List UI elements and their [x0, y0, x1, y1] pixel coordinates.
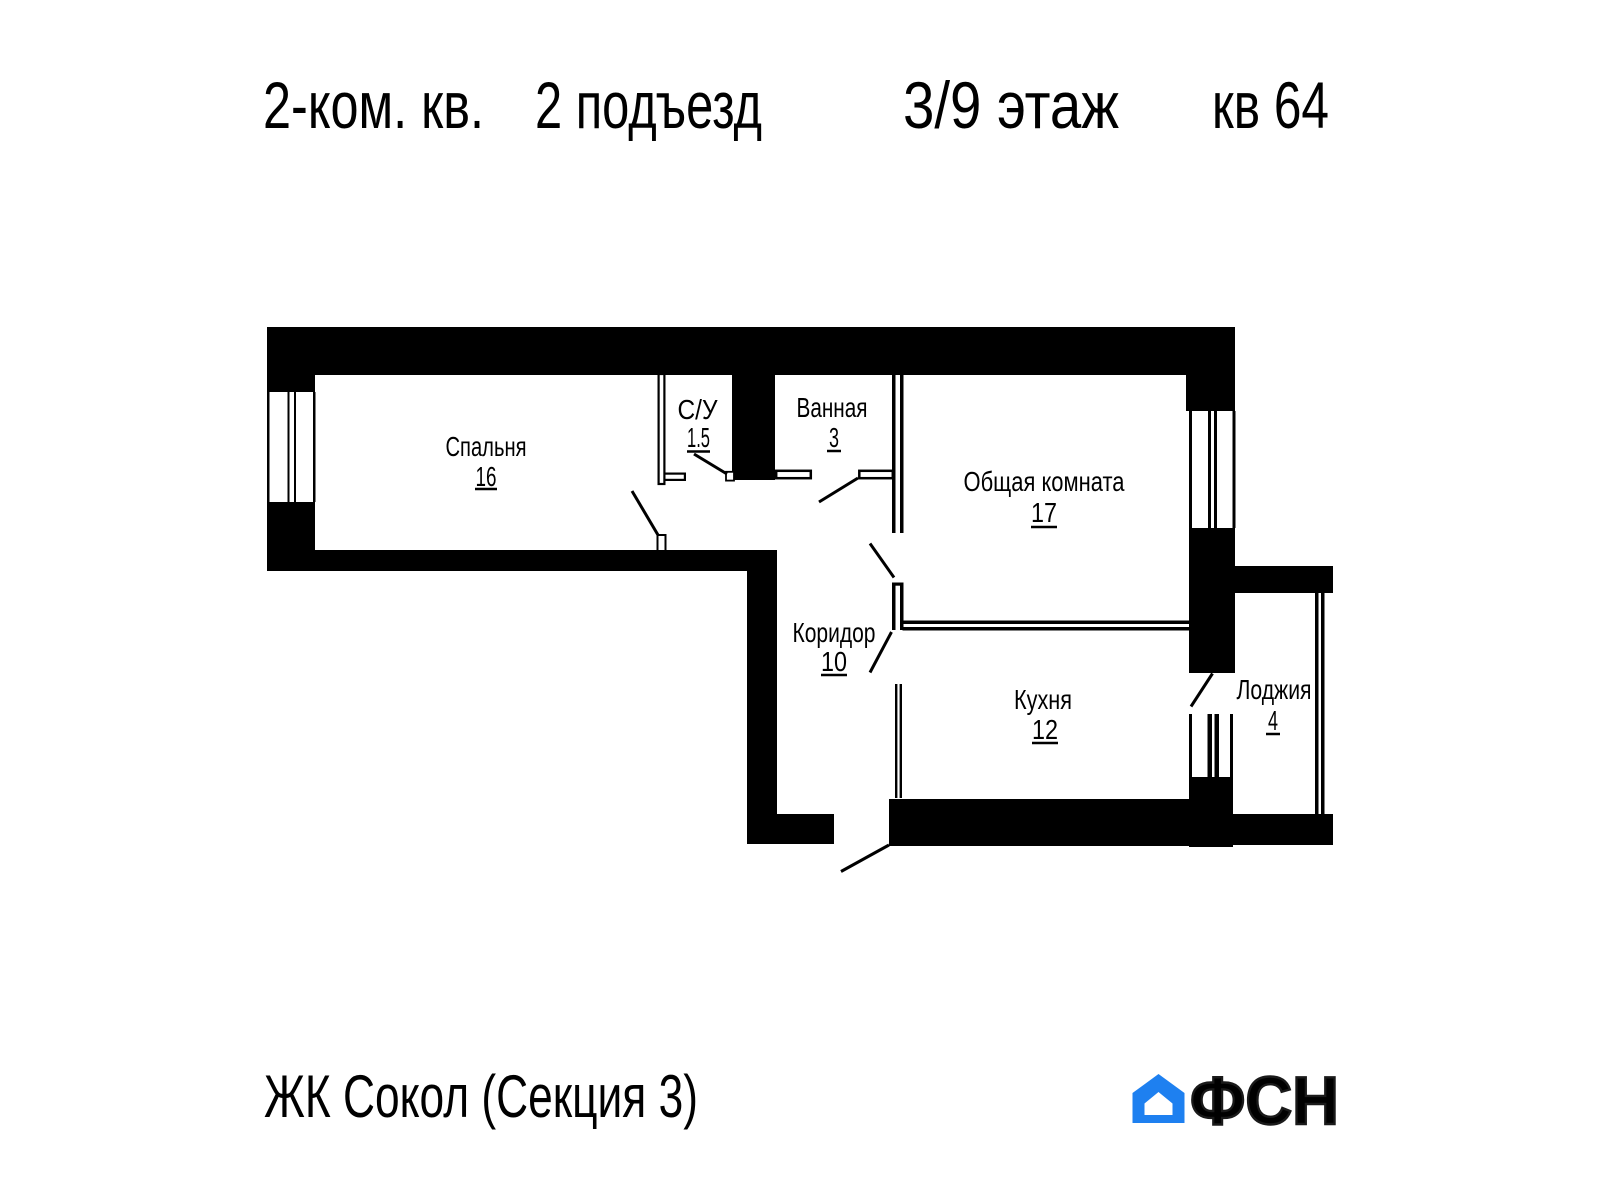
svg-text:С/У: С/У — [678, 394, 718, 425]
svg-text:Общая комната: Общая комната — [964, 466, 1125, 497]
svg-text:2-ком. кв.: 2-ком. кв. — [263, 68, 484, 142]
svg-text:Ванная: Ванная — [797, 392, 868, 423]
svg-text:ЖК Сокол (Секция 3): ЖК Сокол (Секция 3) — [264, 1063, 698, 1130]
svg-text:3/9 этаж: 3/9 этаж — [903, 68, 1119, 142]
svg-text:1.5: 1.5 — [687, 422, 710, 453]
svg-text:Лоджия: Лоджия — [1237, 674, 1312, 705]
svg-text:2 подъезд: 2 подъезд — [535, 68, 762, 142]
svg-text:Коридор: Коридор — [793, 617, 876, 648]
svg-text:Спальня: Спальня — [446, 431, 527, 462]
svg-text:16: 16 — [476, 461, 497, 492]
svg-text:12: 12 — [1032, 714, 1058, 745]
svg-text:17: 17 — [1031, 497, 1057, 528]
svg-text:4: 4 — [1268, 705, 1278, 736]
svg-text:кв 64: кв 64 — [1212, 68, 1329, 142]
svg-text:3: 3 — [829, 422, 839, 453]
svg-text:10: 10 — [821, 646, 847, 677]
svg-text:ФСН: ФСН — [1190, 1063, 1339, 1139]
svg-text:Кухня: Кухня — [1014, 684, 1072, 715]
